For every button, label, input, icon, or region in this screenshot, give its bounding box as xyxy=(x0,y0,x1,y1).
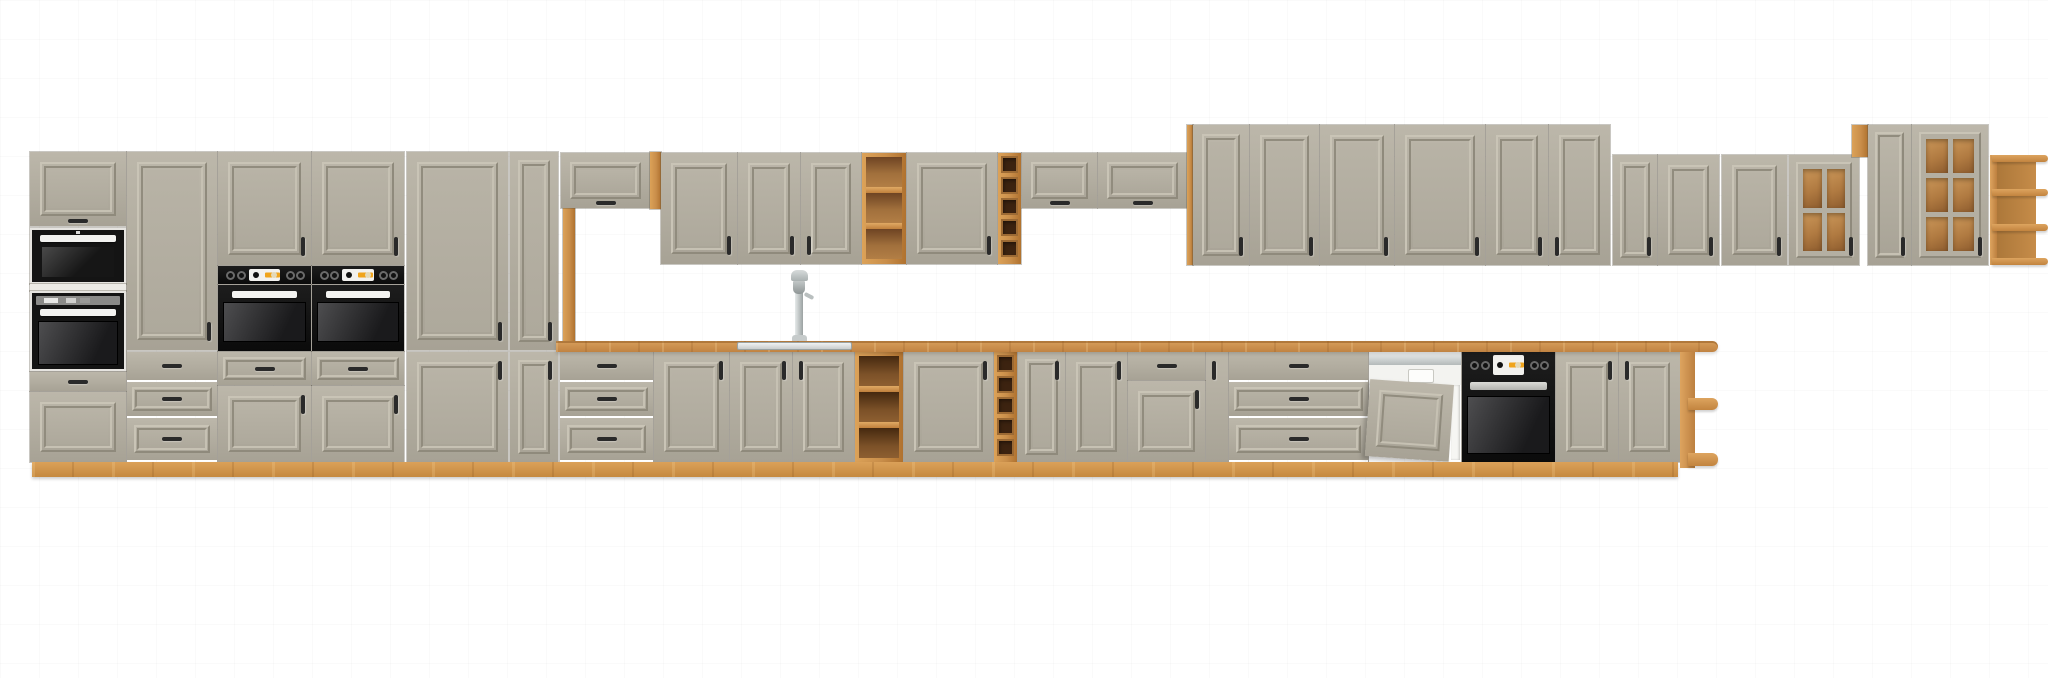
drawer-handle xyxy=(1289,437,1309,441)
door-handle xyxy=(1050,201,1070,205)
door-handle xyxy=(1709,237,1713,256)
door-handle xyxy=(1212,361,1216,380)
built-in-oven xyxy=(30,291,126,371)
drawer-handle xyxy=(255,367,275,371)
wood-side-panel xyxy=(1852,125,1868,157)
door-handle xyxy=(790,236,794,255)
cabinet-door xyxy=(407,352,508,462)
door-handle xyxy=(1647,237,1651,256)
door-handle xyxy=(727,236,731,255)
cabinet-door xyxy=(1613,155,1657,265)
open-shelf-base-unit xyxy=(855,352,903,462)
door-handle xyxy=(1055,361,1059,380)
drawer-stack xyxy=(560,352,653,462)
drawer-handle xyxy=(162,437,182,441)
cabinet-door xyxy=(312,386,404,462)
door-handle xyxy=(1978,237,1982,256)
built-in-oven xyxy=(218,285,311,351)
plinth xyxy=(32,462,1678,477)
cabinet-door xyxy=(1486,125,1548,265)
glass-door-cabinet xyxy=(1789,155,1859,265)
door-handle xyxy=(983,361,987,380)
cabinet-door xyxy=(1018,352,1065,462)
cabinet-door xyxy=(1658,155,1719,265)
cabinet-door xyxy=(738,153,800,264)
drawer-handle xyxy=(1289,364,1309,368)
door-handle xyxy=(498,322,502,341)
wine-rack xyxy=(994,352,1017,462)
drawer-front xyxy=(30,372,126,391)
cabinet-door xyxy=(1128,381,1205,462)
built-in-oven xyxy=(312,285,404,351)
cabinet-door xyxy=(1206,352,1228,462)
kitchen-faucet xyxy=(784,270,816,341)
cabinet-door xyxy=(904,352,993,462)
oven-control-panel xyxy=(218,266,311,284)
door-handle xyxy=(782,361,786,380)
sink-basin-inset xyxy=(737,342,852,350)
door-handle xyxy=(719,361,723,380)
dishwasher-semi-integrated xyxy=(1369,352,1461,462)
drawer-handle xyxy=(68,380,88,384)
wood-side-panel xyxy=(563,208,575,342)
door-handle xyxy=(68,219,88,223)
cabinet-door xyxy=(1320,125,1394,265)
door-handle xyxy=(498,361,502,380)
cabinet-door xyxy=(312,152,404,265)
cabinet-door xyxy=(801,153,861,264)
drawer-front xyxy=(218,352,311,385)
drawer-handle xyxy=(348,367,368,371)
cabinet-door xyxy=(661,153,737,264)
flap-cabinet-door xyxy=(30,152,126,226)
cabinet-door xyxy=(510,352,558,462)
wide-drawer-stack xyxy=(1229,352,1368,462)
cabinet-door xyxy=(1066,352,1127,462)
cabinet-door xyxy=(510,152,558,350)
cabinet-door xyxy=(30,392,126,462)
door-handle xyxy=(1239,237,1243,256)
drawer-handle xyxy=(162,364,182,368)
door-handle xyxy=(301,395,305,414)
door-handle xyxy=(1625,361,1629,380)
door-handle xyxy=(1475,237,1479,256)
drawer-handle xyxy=(1157,364,1177,368)
cabinet-door xyxy=(730,352,792,462)
drawer-handle xyxy=(597,397,617,401)
cabinet-door xyxy=(127,152,217,350)
drawer-handle xyxy=(162,397,182,401)
cabinet-door xyxy=(793,352,854,462)
drawer-front xyxy=(312,352,404,385)
oven-control-panel xyxy=(312,266,404,284)
door-handle xyxy=(394,395,398,414)
drawer-handle xyxy=(1289,397,1309,401)
flap-cabinet-door xyxy=(1098,153,1187,208)
door-handle xyxy=(1384,237,1388,256)
cabinet-door xyxy=(218,386,311,462)
door-handle xyxy=(1195,390,1199,409)
kitchen-line-render xyxy=(0,0,2048,678)
door-handle xyxy=(394,237,398,256)
door-handle xyxy=(1538,237,1542,256)
wood-side-panel xyxy=(650,152,661,209)
door-handle xyxy=(301,237,305,256)
cabinet-door xyxy=(654,352,729,462)
door-handle xyxy=(1555,237,1559,256)
door-handle xyxy=(1777,237,1781,256)
cabinet-door xyxy=(1395,125,1485,265)
door-handle xyxy=(596,201,616,205)
cabinet-door xyxy=(218,152,311,265)
drawer-handle xyxy=(597,364,617,368)
door-handle xyxy=(1608,361,1612,380)
door-handle xyxy=(1309,237,1313,256)
door-handle xyxy=(548,322,552,341)
cabinet-door xyxy=(907,153,997,264)
cabinet-door xyxy=(1193,125,1249,265)
door-handle xyxy=(1849,237,1853,256)
door-handle xyxy=(987,236,991,255)
door-handle xyxy=(207,322,211,341)
door-handle xyxy=(1901,237,1905,256)
drawer-front xyxy=(1128,352,1205,380)
built-in-oven-with-controls xyxy=(1462,352,1555,462)
wine-rack xyxy=(998,153,1021,264)
corner-open-shelf-base xyxy=(1680,352,1718,468)
glass-door-cabinet xyxy=(1912,125,1988,265)
cabinet-door xyxy=(1556,352,1618,462)
door-handle xyxy=(799,361,803,380)
cabinet-door xyxy=(407,152,508,350)
corner-open-shelf-wall xyxy=(1990,155,2048,265)
cabinet-door xyxy=(1722,155,1787,265)
built-in-microwave xyxy=(30,228,126,284)
door-handle xyxy=(1117,361,1121,380)
cabinet-door xyxy=(1250,125,1319,265)
open-shelf-wall-unit xyxy=(862,153,906,264)
cabinet-door xyxy=(1868,125,1911,265)
door-handle xyxy=(1133,201,1153,205)
door-handle xyxy=(807,236,811,255)
cabinet-door xyxy=(1549,125,1610,265)
flap-cabinet-door xyxy=(561,153,650,208)
appliance-divider-strip xyxy=(30,284,126,291)
drawer-handle xyxy=(597,437,617,441)
cabinet-door xyxy=(1619,352,1680,462)
door-handle xyxy=(548,361,552,380)
flap-cabinet-door xyxy=(1022,153,1097,208)
countertop xyxy=(556,341,1718,352)
drawer-stack xyxy=(127,352,217,462)
